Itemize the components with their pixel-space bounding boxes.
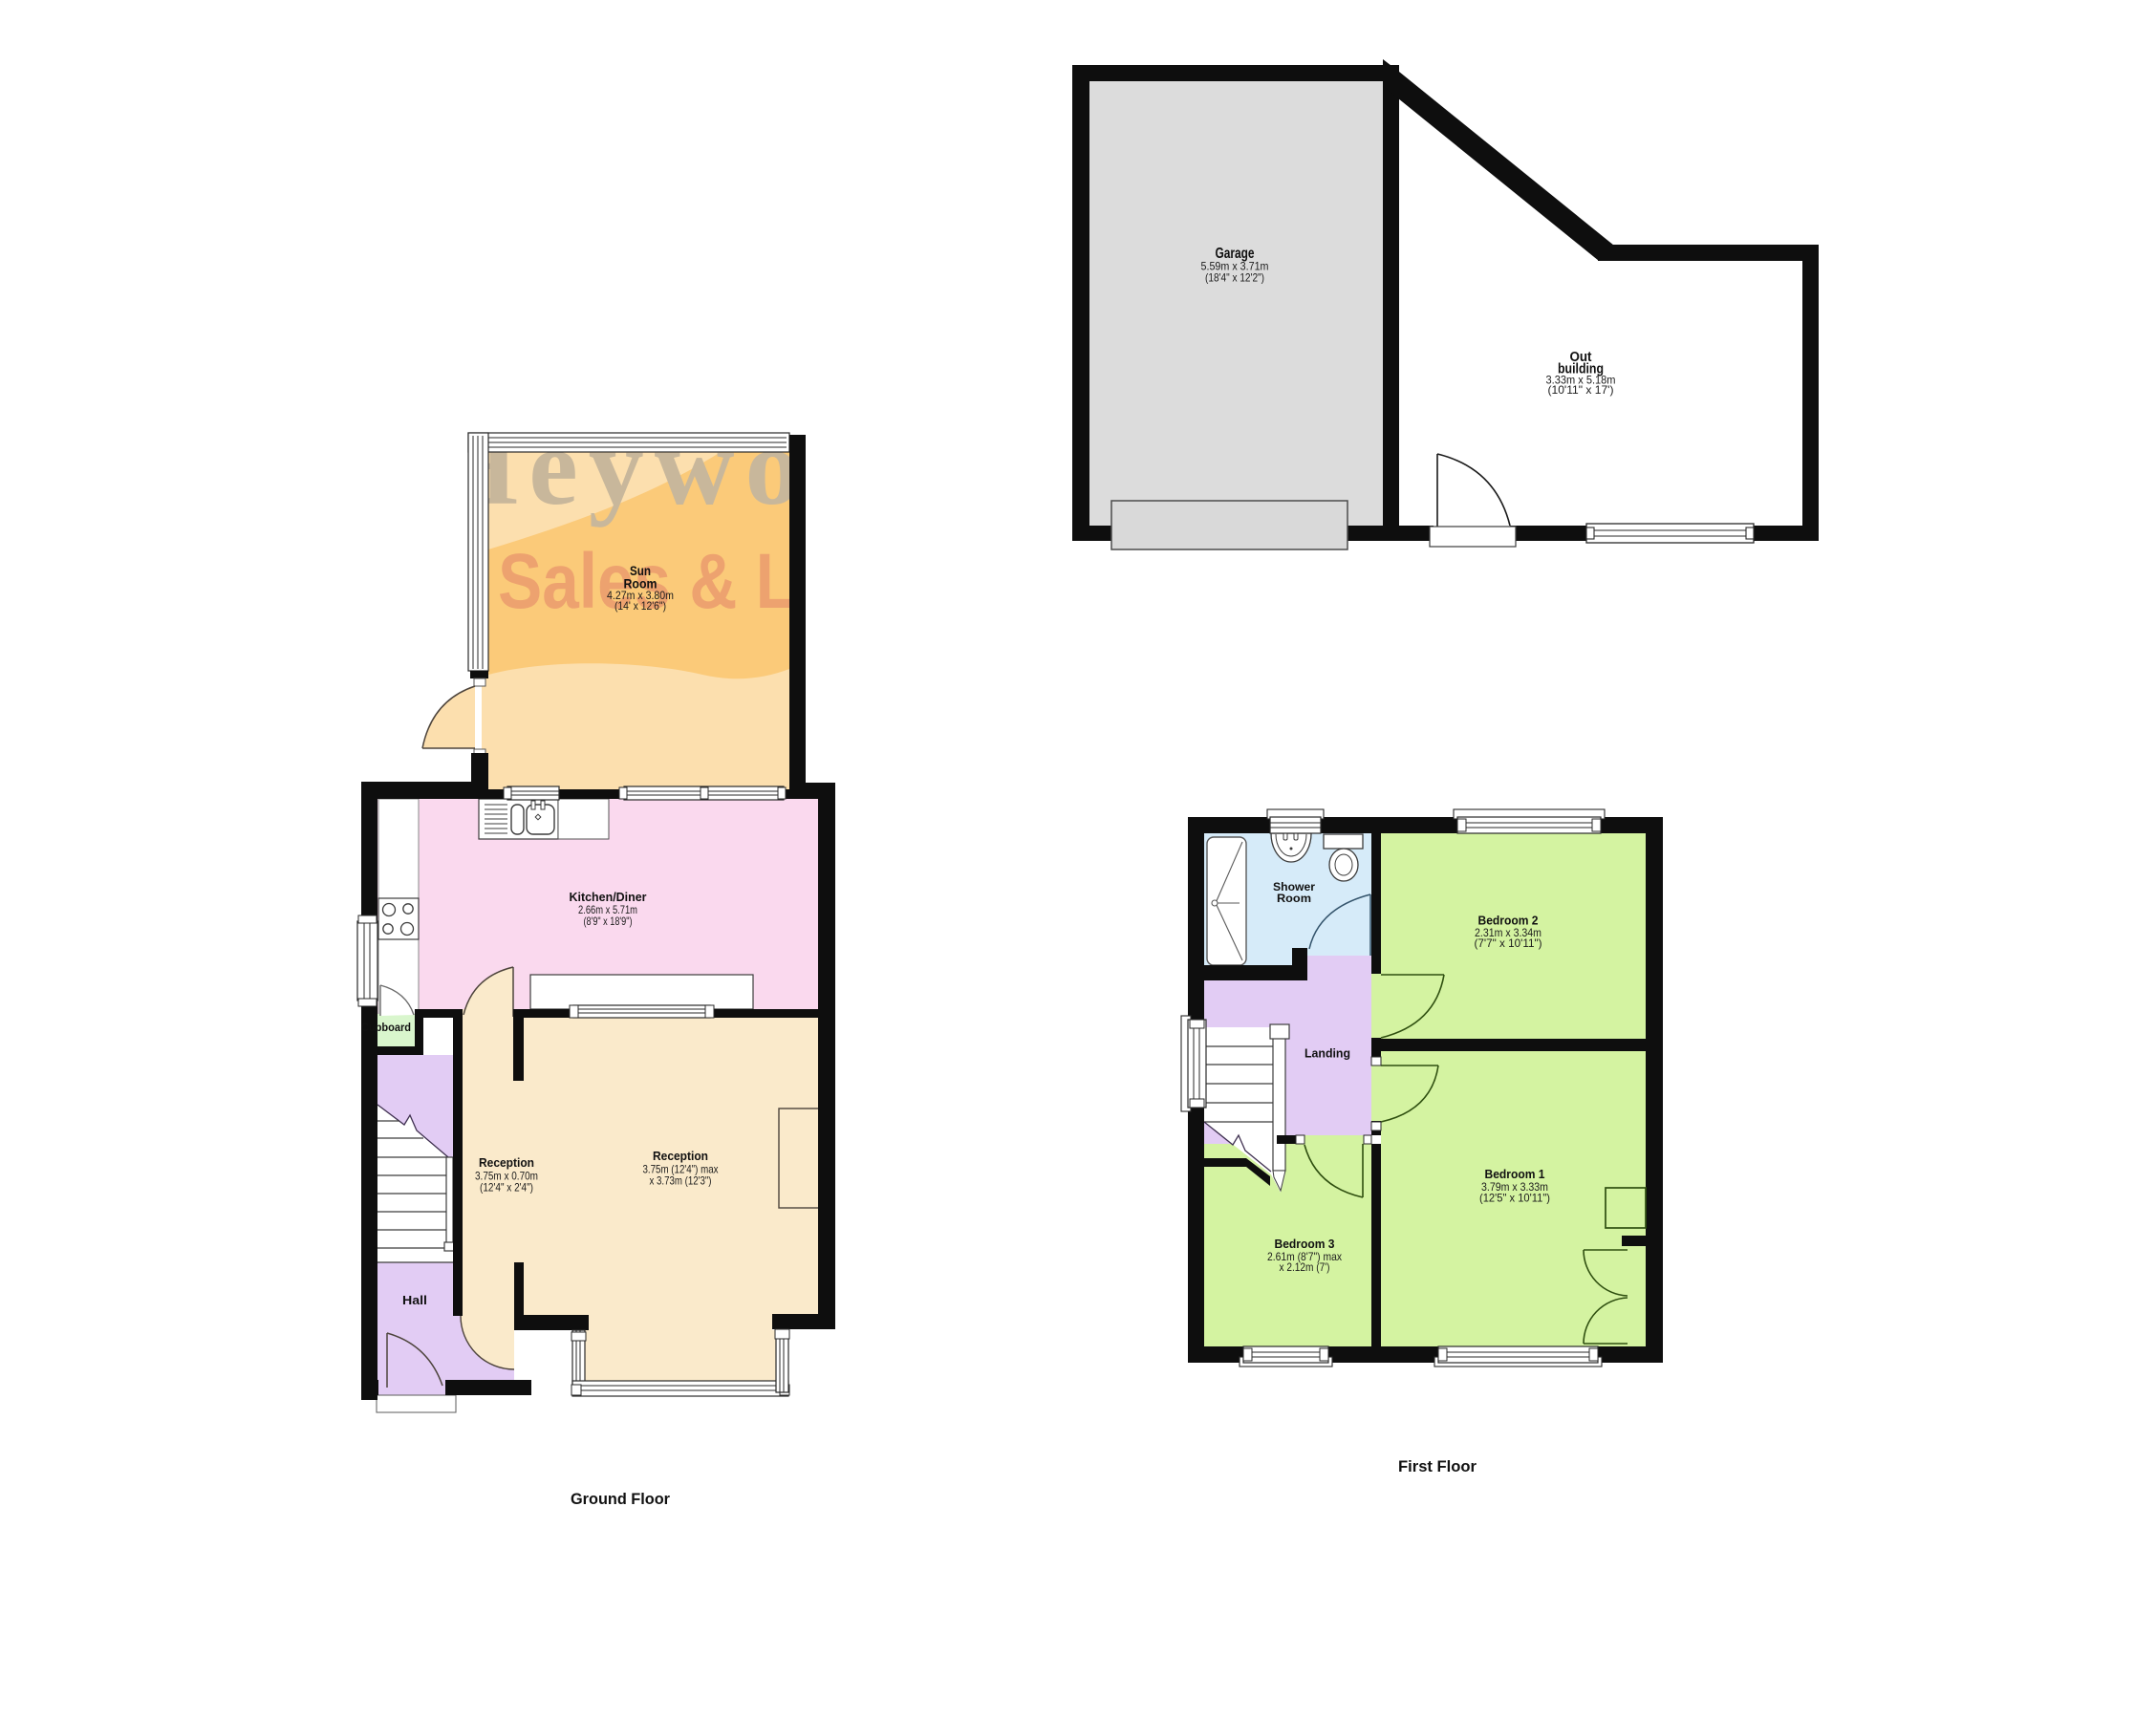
svg-text:Room: Room xyxy=(1277,893,1311,905)
svg-text:(12'4" x 2'4"): (12'4" x 2'4") xyxy=(480,1182,533,1195)
svg-text:(14' x 12'6"): (14' x 12'6") xyxy=(614,600,666,613)
svg-text:Shower: Shower xyxy=(1273,882,1316,893)
svg-text:(7'7" x 10'11"): (7'7" x 10'11") xyxy=(1475,937,1542,950)
svg-text:(8'9" x 18'9"): (8'9" x 18'9") xyxy=(584,915,633,928)
svg-text:Bedroom 3: Bedroom 3 xyxy=(1275,1237,1335,1251)
svg-text:Cupboard: Cupboard xyxy=(361,1022,411,1034)
svg-text:Hall: Hall xyxy=(402,1294,427,1307)
svg-text:Ground Floor: Ground Floor xyxy=(571,1490,670,1508)
svg-text:(12'5" x 10'11"): (12'5" x 10'11") xyxy=(1479,1192,1550,1204)
svg-text:Reception: Reception xyxy=(479,1155,534,1170)
svg-text:Bedroom 1: Bedroom 1 xyxy=(1485,1167,1545,1181)
svg-text:(10'11" x 17'): (10'11" x 17') xyxy=(1548,384,1614,397)
svg-text:(18'4" x 12'2"): (18'4" x 12'2") xyxy=(1205,272,1264,285)
svg-text:Landing: Landing xyxy=(1304,1047,1350,1061)
svg-text:Reception: Reception xyxy=(653,1149,708,1163)
svg-text:First Floor: First Floor xyxy=(1398,1457,1477,1475)
svg-text:x 3.73m (12'3"): x 3.73m (12'3") xyxy=(650,1175,712,1188)
svg-text:Bedroom 2: Bedroom 2 xyxy=(1478,913,1539,927)
svg-text:Garage: Garage xyxy=(1216,246,1255,262)
svg-text:x 2.12m (7'): x 2.12m (7') xyxy=(1280,1261,1330,1274)
svg-text:Kitchen/Diner: Kitchen/Diner xyxy=(570,891,647,904)
